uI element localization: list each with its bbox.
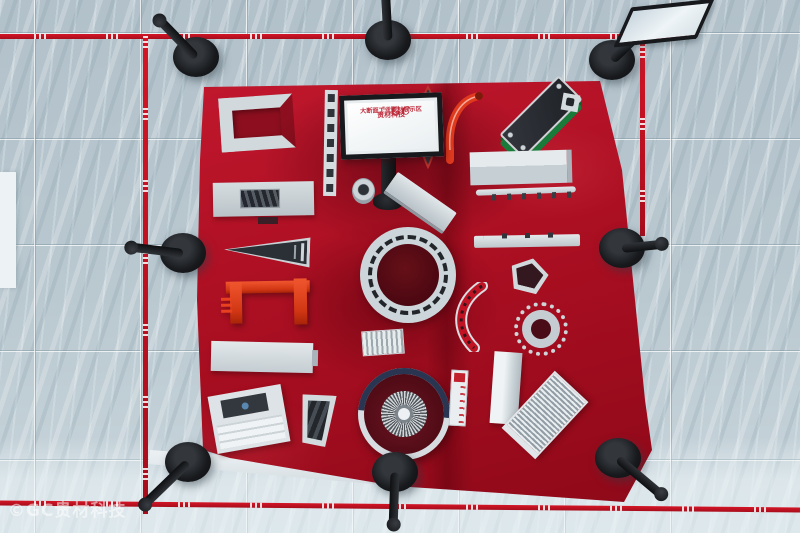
caution-tape-top — [0, 34, 696, 39]
stanchion-left-middle — [160, 233, 206, 273]
watermark: ©GC贵材科技 — [8, 496, 126, 521]
stanchion-right-middle — [599, 228, 645, 268]
large-ring-profile — [360, 227, 456, 323]
round-knob-profile — [352, 178, 375, 204]
sign-face: GC® 贵材铝材 贵材科技 大断面工业型材展示区 — [347, 100, 436, 151]
curved-arc-profile — [446, 282, 498, 352]
stanchion-bottom-left — [165, 442, 211, 482]
ruler-strip-profile — [449, 370, 469, 427]
corrugated-panel-profile — [361, 329, 405, 357]
caution-tape-left — [143, 36, 148, 514]
sign-subtitle: 大断面工业型材展示区 — [360, 105, 422, 115]
stanchion-top-middle — [365, 20, 411, 60]
panel-notch — [258, 217, 278, 224]
red-i-beam-profile — [226, 276, 311, 325]
stanchion-top-right — [589, 40, 635, 80]
stanchion-bottom-right — [595, 438, 641, 478]
turbine-housing-profile — [358, 368, 450, 460]
handle-panel-profile — [213, 181, 315, 217]
exhibition-photo: GC® 贵材铝材 贵材科技 大断面工业型材展示区 — [0, 0, 800, 533]
left-white-band — [0, 172, 16, 288]
caution-tape-right — [640, 30, 645, 236]
small-square-profile — [561, 93, 581, 113]
stanchion-bottom-middle — [372, 452, 418, 492]
ladder-strip-profile — [323, 90, 338, 196]
exhibit-sign-board: GC® 贵材铝材 贵材科技 大断面工业型材展示区 — [339, 92, 444, 160]
rail-box-profile — [470, 150, 573, 186]
u-channel-profile — [218, 93, 296, 152]
thin-rail-profile — [474, 234, 580, 248]
stanchion-top-left — [173, 37, 219, 77]
long-bar-profile — [211, 341, 314, 373]
